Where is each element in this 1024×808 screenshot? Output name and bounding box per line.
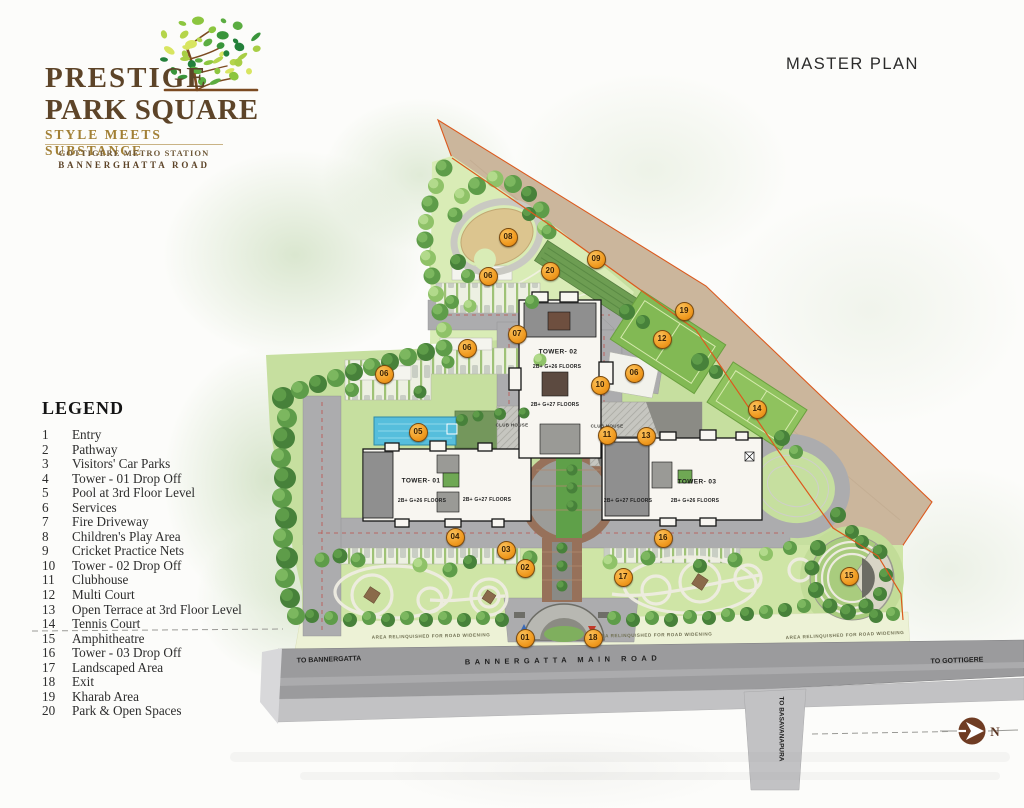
legend-item-label: Fire Driveway	[72, 515, 149, 530]
legend-item-number: 11	[42, 573, 72, 588]
legend-item-label: Services	[72, 501, 117, 516]
legend-item-10: 10Tower - 02 Drop Off	[42, 559, 292, 574]
logo-divider	[45, 144, 223, 145]
legend-item-label: Tennis Court	[72, 617, 140, 632]
legend-item-2: 2Pathway	[42, 443, 292, 458]
legend-item-4: 4Tower - 01 Drop Off	[42, 472, 292, 487]
legend-item-19: 19Kharab Area	[42, 690, 292, 705]
legend-item-16: 16Tower - 03 Drop Off	[42, 646, 292, 661]
legend-item-13: 13Open Terrace at 3rd Floor Level	[42, 603, 292, 618]
legend-item-number: 13	[42, 603, 72, 618]
legend-item-1: 1Entry	[42, 428, 292, 443]
map-marker-06: 06	[375, 365, 394, 384]
map-marker-18: 18	[584, 629, 603, 648]
legend-list: 1Entry2Pathway3Visitors' Car Parks4Tower…	[42, 428, 292, 719]
map-marker-11: 11	[598, 426, 617, 445]
legend-item-14: 14Tennis Court	[42, 617, 292, 632]
legend-panel: LEGEND 1Entry2Pathway3Visitors' Car Park…	[42, 398, 292, 719]
legend-item-label: Clubhouse	[72, 573, 128, 588]
map-marker-15: 15	[840, 567, 859, 586]
map-marker-05: 05	[409, 423, 428, 442]
map-marker-06: 06	[479, 267, 498, 286]
legend-item-number: 5	[42, 486, 72, 501]
map-marker-12: 12	[653, 330, 672, 349]
legend-item-number: 10	[42, 559, 72, 574]
legend-item-number: 15	[42, 632, 72, 647]
legend-item-number: 20	[42, 704, 72, 719]
map-marker-03: 03	[497, 541, 516, 560]
legend-item-number: 14	[42, 617, 72, 632]
map-marker-04: 04	[446, 528, 465, 547]
legend-item-number: 8	[42, 530, 72, 545]
brand-subline-road: BANNERGHATTA ROAD	[45, 160, 223, 170]
legend-item-label: Tower - 02 Drop Off	[72, 559, 181, 574]
brand-name-line2: PARK SQUARE	[45, 94, 259, 127]
legend-item-label: Open Terrace at 3rd Floor Level	[72, 603, 242, 618]
legend-item-label: Exit	[72, 675, 94, 690]
legend-item-20: 20Park & Open Spaces	[42, 704, 292, 719]
legend-item-label: Amphitheatre	[72, 632, 145, 647]
legend-item-12: 12Multi Court	[42, 588, 292, 603]
page-title: MASTER PLAN	[786, 55, 919, 74]
legend-item-number: 2	[42, 443, 72, 458]
map-marker-17: 17	[614, 568, 633, 587]
legend-item-11: 11Clubhouse	[42, 573, 292, 588]
legend-item-7: 7Fire Driveway	[42, 515, 292, 530]
brand-subline-metro: GOTTIGERE METRO STATION	[45, 148, 223, 158]
map-marker-10: 10	[591, 376, 610, 395]
legend-item-number: 4	[42, 472, 72, 487]
legend-item-8: 8Children's Play Area	[42, 530, 292, 545]
map-marker-16: 16	[654, 529, 673, 548]
legend-item-9: 9Cricket Practice Nets	[42, 544, 292, 559]
legend-item-17: 17Landscaped Area	[42, 661, 292, 676]
map-marker-07: 07	[508, 325, 527, 344]
legend-item-number: 19	[42, 690, 72, 705]
legend-item-number: 17	[42, 661, 72, 676]
legend-item-number: 9	[42, 544, 72, 559]
map-marker-19: 19	[675, 302, 694, 321]
legend-item-label: Tower - 03 Drop Off	[72, 646, 181, 661]
legend-item-number: 16	[42, 646, 72, 661]
map-marker-08: 08	[499, 228, 518, 247]
master-plan-page: TOWER- 01 2B+ G+26 FLOORS 2B+ G+27 FLOOR…	[0, 0, 1024, 808]
map-marker-01: 01	[516, 629, 535, 648]
legend-item-number: 7	[42, 515, 72, 530]
legend-item-number: 1	[42, 428, 72, 443]
map-marker-09: 09	[587, 250, 606, 269]
brand-name-line1: PRESTIGE	[45, 62, 208, 95]
legend-item-label: Children's Play Area	[72, 530, 181, 545]
legend-item-18: 18Exit	[42, 675, 292, 690]
legend-item-label: Entry	[72, 428, 101, 443]
map-marker-02: 02	[516, 559, 535, 578]
legend-item-15: 15Amphitheatre	[42, 632, 292, 647]
legend-item-number: 18	[42, 675, 72, 690]
legend-item-6: 6Services	[42, 501, 292, 516]
legend-item-label: Park & Open Spaces	[72, 704, 182, 719]
map-marker-06: 06	[458, 339, 477, 358]
legend-item-label: Pathway	[72, 443, 117, 458]
legend-item-number: 6	[42, 501, 72, 516]
brand-logo: PRESTIGE PARK SQUARE STYLE MEETS SUBSTAN…	[45, 14, 265, 174]
legend-item-number: 12	[42, 588, 72, 603]
legend-item-label: Multi Court	[72, 588, 135, 603]
legend-item-label: Kharab Area	[72, 690, 139, 705]
legend-item-3: 3Visitors' Car Parks	[42, 457, 292, 472]
legend-title: LEGEND	[42, 398, 292, 419]
legend-item-number: 3	[42, 457, 72, 472]
legend-item-5: 5Pool at 3rd Floor Level	[42, 486, 292, 501]
legend-item-label: Pool at 3rd Floor Level	[72, 486, 195, 501]
legend-item-label: Visitors' Car Parks	[72, 457, 170, 472]
legend-item-label: Cricket Practice Nets	[72, 544, 184, 559]
legend-item-label: Tower - 01 Drop Off	[72, 472, 181, 487]
map-marker-14: 14	[748, 400, 767, 419]
map-marker-06: 06	[625, 364, 644, 383]
legend-item-label: Landscaped Area	[72, 661, 163, 676]
map-marker-13: 13	[637, 427, 656, 446]
map-marker-20: 20	[541, 262, 560, 281]
